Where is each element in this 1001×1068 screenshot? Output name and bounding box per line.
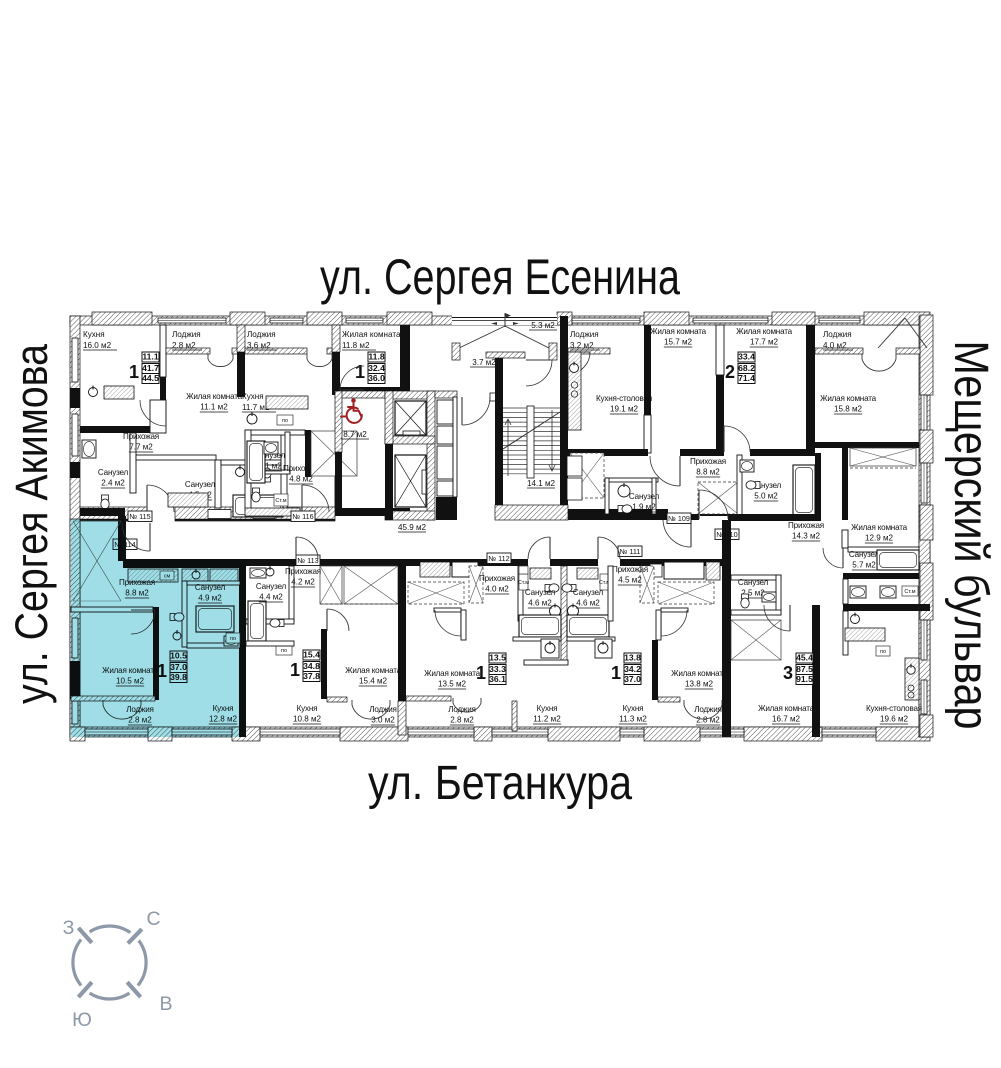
svg-text:1.9 м2: 1.9 м2	[632, 503, 656, 512]
svg-text:№ 112: № 112	[488, 554, 509, 563]
svg-text:Кухня: Кухня	[537, 704, 558, 713]
svg-text:2.8 м2: 2.8 м2	[172, 341, 196, 350]
svg-text:11.1: 11.1	[142, 352, 158, 362]
svg-text:Кухня-столовая: Кухня-столовая	[866, 704, 922, 713]
svg-text:12.9 м2: 12.9 м2	[865, 534, 894, 543]
svg-text:3.0 м2: 3.0 м2	[371, 716, 395, 725]
svg-text:16.7 м2: 16.7 м2	[772, 715, 801, 724]
svg-text:45.4: 45.4	[796, 653, 813, 663]
svg-text:З: З	[63, 917, 75, 939]
svg-text:1: 1	[355, 362, 365, 382]
svg-text:71.4: 71.4	[738, 373, 755, 383]
svg-text:Ст.м: Ст.м	[518, 580, 529, 586]
svg-text:11.8 м2: 11.8 м2	[342, 341, 370, 350]
svg-text:4.6 м2: 4.6 м2	[528, 599, 552, 608]
svg-text:Кухня: Кухня	[242, 392, 264, 401]
svg-text:45.9 м2: 45.9 м2	[398, 523, 427, 532]
svg-text:Ст.м: Ст.м	[275, 498, 286, 504]
svg-text:ул. Бетанкура: ул. Бетанкура	[368, 757, 632, 810]
svg-text:8.7 м2: 8.7 м2	[343, 430, 367, 439]
svg-text:Жилая комната: Жилая комната	[342, 330, 401, 339]
svg-text:Лоджия: Лоджия	[172, 330, 201, 339]
svg-text:№ 115: № 115	[129, 512, 150, 521]
svg-text:2.8 м2: 2.8 м2	[696, 716, 720, 725]
svg-text:Мещерский бульвар: Мещерский бульвар	[944, 341, 997, 730]
svg-text:3.2 м2: 3.2 м2	[570, 341, 594, 350]
svg-text:2.8 м2: 2.8 м2	[450, 716, 474, 725]
svg-text:№ 113: № 113	[297, 556, 318, 565]
svg-text:5.0 м2: 5.0 м2	[754, 492, 778, 501]
svg-text:Лоджия: Лоджия	[369, 705, 396, 714]
svg-text:5.7 м2: 5.7 м2	[852, 561, 876, 570]
svg-text:по: по	[282, 418, 288, 424]
svg-text:1: 1	[476, 663, 486, 683]
svg-text:Лоджия: Лоджия	[823, 330, 852, 339]
svg-text:Прихожая: Прихожая	[612, 565, 648, 574]
svg-text:4.5 м2: 4.5 м2	[618, 576, 642, 585]
svg-text:4.0 м2: 4.0 м2	[485, 585, 509, 594]
svg-text:№ 111: № 111	[620, 547, 641, 556]
svg-text:15.4 м2: 15.4 м2	[359, 677, 388, 686]
svg-text:7.7 м2: 7.7 м2	[129, 443, 153, 452]
svg-text:ул. Сергея Акимова: ул. Сергея Акимова	[6, 343, 57, 704]
svg-text:Жилая комната: Жилая комната	[186, 392, 243, 401]
svg-text:Санузел: Санузел	[849, 550, 880, 559]
svg-text:Жилая комната: Жилая комната	[650, 327, 707, 336]
svg-text:15.8 м2: 15.8 м2	[834, 405, 863, 414]
svg-text:Жилая комната: Жилая комната	[758, 704, 815, 713]
svg-text:44.5: 44.5	[142, 373, 159, 383]
svg-text:1: 1	[290, 660, 300, 680]
svg-text:17.7 м2: 17.7 м2	[750, 338, 779, 347]
svg-text:Жилая комната: Жилая комната	[671, 669, 728, 678]
svg-text:Кухня-столовая: Кухня-столовая	[596, 394, 652, 403]
svg-text:11.3 м2: 11.3 м2	[619, 715, 647, 724]
svg-text:Санузел: Санузел	[629, 492, 660, 501]
svg-text:3: 3	[783, 663, 793, 683]
svg-text:Лоджия: Лоджия	[570, 330, 599, 339]
svg-text:19.1 м2: 19.1 м2	[610, 405, 639, 414]
svg-text:32.4: 32.4	[368, 363, 385, 373]
svg-text:2: 2	[725, 362, 735, 382]
svg-text:37.8: 37.8	[303, 671, 320, 681]
svg-text:2.4 м2: 2.4 м2	[101, 479, 125, 488]
svg-text:В: В	[159, 993, 172, 1015]
svg-text:87.5: 87.5	[796, 664, 813, 674]
svg-text:Ю: Ю	[72, 1009, 92, 1031]
svg-text:1: 1	[129, 362, 139, 382]
svg-text:Ст.м: Ст.м	[904, 589, 915, 595]
svg-text:3.7 м2: 3.7 м2	[472, 358, 496, 367]
svg-text:4.6 м2: 4.6 м2	[576, 599, 600, 608]
svg-text:Кухня: Кухня	[83, 330, 105, 339]
svg-text:15.7 м2: 15.7 м2	[664, 338, 693, 347]
svg-text:91.5: 91.5	[796, 674, 813, 684]
svg-text:36.1: 36.1	[489, 674, 506, 684]
svg-text:Санузел: Санузел	[525, 588, 556, 597]
svg-text:14.3 м2: 14.3 м2	[792, 532, 821, 541]
svg-text:Прихожая: Прихожая	[788, 521, 824, 530]
svg-text:Жилая комната: Жилая комната	[736, 327, 793, 336]
svg-text:16.0 м2: 16.0 м2	[83, 341, 112, 350]
svg-text:ул. Сергея Есенина: ул. Сергея Есенина	[320, 249, 680, 305]
svg-text:41.7: 41.7	[142, 363, 159, 373]
svg-text:34.8: 34.8	[303, 661, 320, 671]
svg-text:8.8 м2: 8.8 м2	[696, 468, 720, 477]
svg-text:Санузел: Санузел	[256, 582, 287, 591]
svg-text:13.8 м2: 13.8 м2	[685, 680, 714, 689]
svg-text:Лоджия: Лоджия	[448, 705, 475, 714]
svg-text:15.4: 15.4	[303, 650, 320, 660]
svg-text:Санузел: Санузел	[98, 468, 129, 477]
svg-text:11.2 м2: 11.2 м2	[533, 715, 561, 724]
svg-text:Прихожая: Прихожая	[690, 457, 726, 466]
svg-text:Прихожая: Прихожая	[285, 567, 321, 576]
svg-text:68.2: 68.2	[738, 363, 755, 373]
svg-text:13.5: 13.5	[489, 653, 506, 663]
svg-text:33.4: 33.4	[738, 352, 755, 362]
svg-text:33.3: 33.3	[489, 664, 506, 674]
svg-text:Кухня: Кухня	[297, 704, 318, 713]
svg-text:Лоджия: Лоджия	[247, 330, 276, 339]
svg-text:14.1 м2: 14.1 м2	[527, 479, 556, 488]
svg-text:10.8 м2: 10.8 м2	[293, 715, 322, 724]
svg-text:36.0: 36.0	[368, 373, 385, 383]
svg-text:19.6 м2: 19.6 м2	[880, 715, 909, 724]
svg-text:Жилая комната: Жилая комната	[345, 666, 402, 675]
svg-text:4.0 м2: 4.0 м2	[823, 341, 847, 350]
svg-text:3.6 м2: 3.6 м2	[247, 341, 271, 350]
svg-text:№ 109: № 109	[668, 514, 690, 523]
svg-text:37.0: 37.0	[624, 674, 641, 684]
svg-text:Жилая комната: Жилая комната	[820, 394, 877, 403]
svg-text:Санузел: Санузел	[185, 480, 216, 489]
svg-text:Жилая комната: Жилая комната	[851, 523, 908, 532]
svg-text:11.8: 11.8	[368, 352, 384, 362]
svg-text:13.8: 13.8	[624, 653, 641, 663]
svg-text:Санузел: Санузел	[738, 578, 769, 587]
svg-text:5.3 м2: 5.3 м2	[531, 321, 555, 330]
svg-text:34.2: 34.2	[624, 664, 641, 674]
svg-text:Прихожая: Прихожая	[123, 432, 159, 441]
svg-text:С: С	[146, 908, 160, 930]
svg-text:4.4 м2: 4.4 м2	[259, 593, 283, 602]
svg-text:Прихожая: Прихожая	[479, 574, 515, 583]
svg-text:№ 116: № 116	[292, 512, 313, 521]
svg-text:Санузел: Санузел	[573, 588, 604, 597]
svg-text:4.2 м2: 4.2 м2	[291, 578, 315, 587]
svg-text:Кухня: Кухня	[623, 704, 644, 713]
svg-text:по: по	[281, 648, 287, 654]
svg-text:11.1 м2: 11.1 м2	[200, 403, 228, 412]
svg-text:1: 1	[611, 663, 621, 683]
svg-text:Жилая комната: Жилая комната	[424, 669, 481, 678]
svg-text:по: по	[880, 649, 886, 655]
svg-text:13.5 м2: 13.5 м2	[438, 680, 467, 689]
